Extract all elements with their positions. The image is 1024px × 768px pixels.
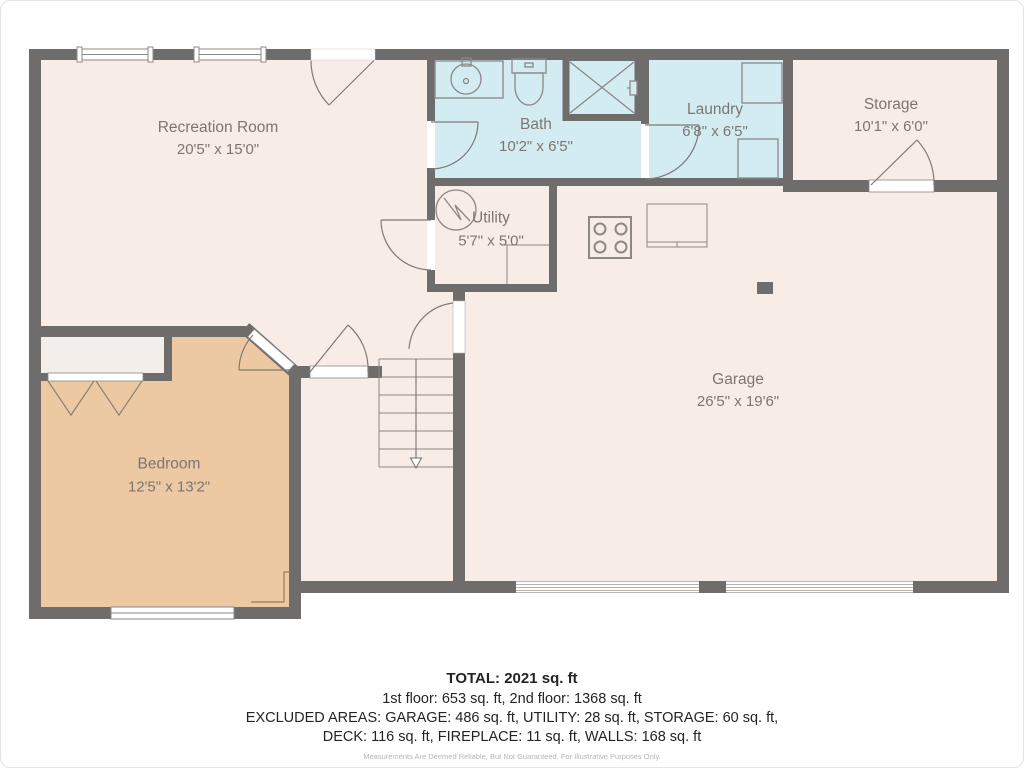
room-dims: 10'1" x 6'0" bbox=[854, 118, 928, 133]
entry-door-gap bbox=[311, 49, 375, 60]
window bbox=[111, 607, 234, 619]
room-label-storage: Storage 10'1" x 6'0" bbox=[854, 97, 928, 134]
floors-area-text: 1st floor: 653 sq. ft, 2nd floor: 1368 s… bbox=[1, 691, 1023, 707]
window bbox=[77, 47, 153, 62]
hall-door-slab bbox=[310, 366, 368, 378]
room-dims: 12'5" x 13'2" bbox=[128, 479, 210, 494]
utility-door-gap bbox=[427, 220, 435, 270]
garage-entry-door-gap bbox=[453, 301, 465, 353]
room-name: Recreation Room bbox=[158, 120, 279, 136]
room-label-bath: Bath 10'2" x 6'5" bbox=[499, 117, 573, 154]
support-post bbox=[757, 282, 773, 294]
room-dims: 6'8" x 6'5" bbox=[682, 123, 748, 138]
closet-floor bbox=[41, 337, 164, 373]
room-label-garage: Garage 26'5" x 19'6" bbox=[697, 372, 779, 409]
garage-door bbox=[516, 582, 699, 593]
room-label-laundry: Laundry 6'8" x 6'5" bbox=[682, 102, 748, 139]
room-name: Storage bbox=[854, 97, 928, 113]
room-name: Bedroom bbox=[128, 456, 210, 472]
total-area-text: TOTAL: 2021 sq. ft bbox=[1, 670, 1023, 687]
excluded-areas-text-2: DECK: 116 sq. ft, FIREPLACE: 11 sq. ft, … bbox=[1, 729, 1023, 745]
storage-door-slab bbox=[869, 180, 934, 192]
room-name: Utility bbox=[458, 210, 524, 226]
room-dims: 26'5" x 19'6" bbox=[697, 393, 779, 408]
garage-door bbox=[726, 582, 913, 593]
room-dims: 10'2" x 6'5" bbox=[499, 138, 573, 153]
area-summary: TOTAL: 2021 sq. ft 1st floor: 653 sq. ft… bbox=[1, 670, 1023, 761]
room-name: Bath bbox=[499, 117, 573, 133]
room-dims: 5'7" x 5'0" bbox=[458, 233, 524, 248]
closet-door-slab bbox=[48, 373, 143, 381]
laundry-door-gap bbox=[641, 124, 649, 178]
room-dims: 20'5" x 15'0" bbox=[158, 141, 279, 156]
room-label-recreation: Recreation Room 20'5" x 15'0" bbox=[158, 120, 279, 157]
excluded-areas-text-1: EXCLUDED AREAS: GARAGE: 486 sq. ft, UTIL… bbox=[1, 710, 1023, 726]
floor-plan-page: Recreation Room 20'5" x 15'0" Bath 10'2"… bbox=[0, 0, 1024, 768]
room-label-bedroom: Bedroom 12'5" x 13'2" bbox=[128, 456, 210, 494]
room-name: Garage bbox=[697, 372, 779, 388]
room-name: Laundry bbox=[682, 102, 748, 118]
bath-door-gap bbox=[427, 121, 435, 168]
window bbox=[194, 47, 266, 62]
disclaimer-text: Measurements Are Deemed Reliable, But No… bbox=[1, 752, 1023, 761]
room-label-utility: Utility 5'7" x 5'0" bbox=[458, 210, 524, 248]
